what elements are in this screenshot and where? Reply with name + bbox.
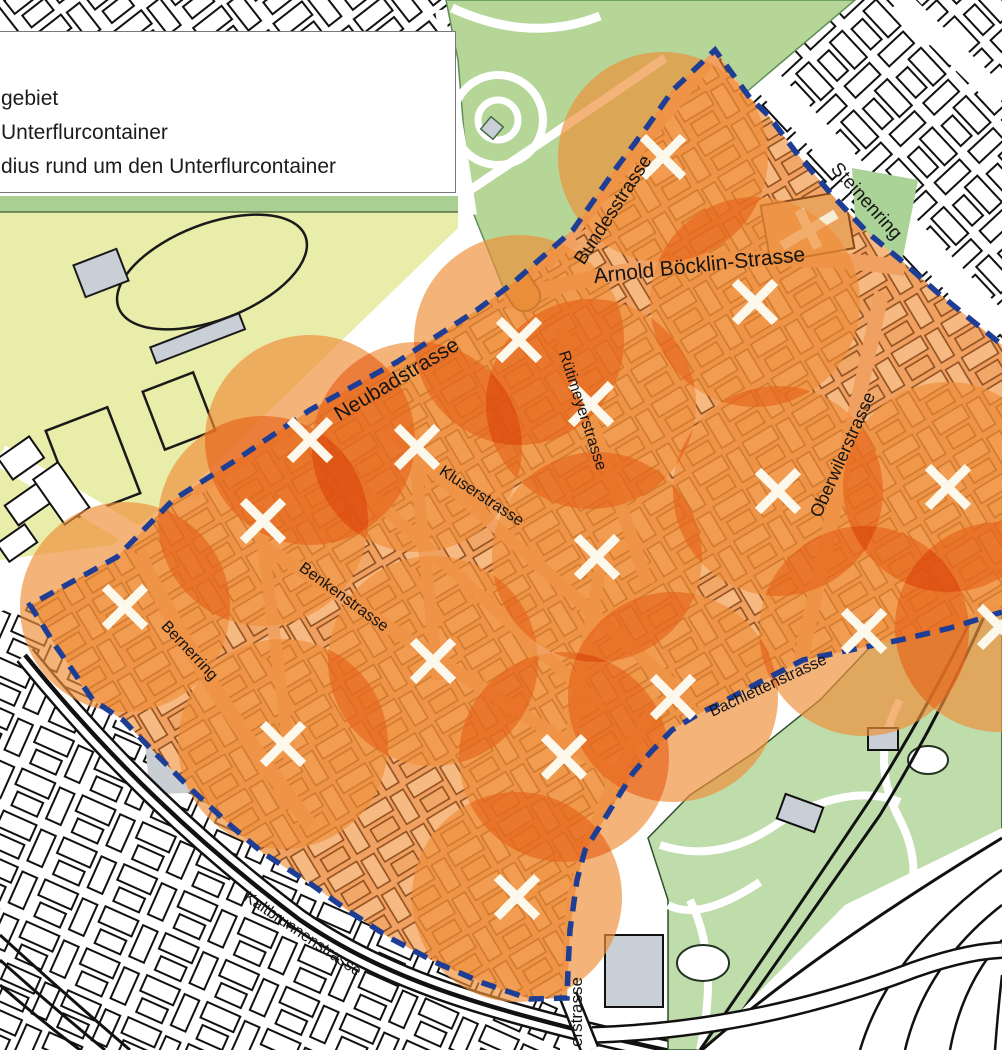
legend-item-pilot-area: gebiet: [1, 87, 58, 111]
street-label-erstrasse: erstrasse: [567, 977, 586, 1047]
map-screenshot: BundesstrasseSteinenringArnold Böcklin-S…: [0, 0, 1002, 1050]
legend-item-container: Unterflurcontainer: [1, 121, 168, 145]
legend-box: gebiet Unterflurcontainer dius rund um d…: [0, 31, 456, 193]
gray-building: [605, 935, 663, 1007]
zoo-pond: [677, 945, 729, 981]
zoo-pond: [908, 746, 948, 774]
buildings-top-left: [0, 0, 472, 32]
legend-item-radius: dius rund um den Unterflurcontainer: [1, 155, 336, 179]
